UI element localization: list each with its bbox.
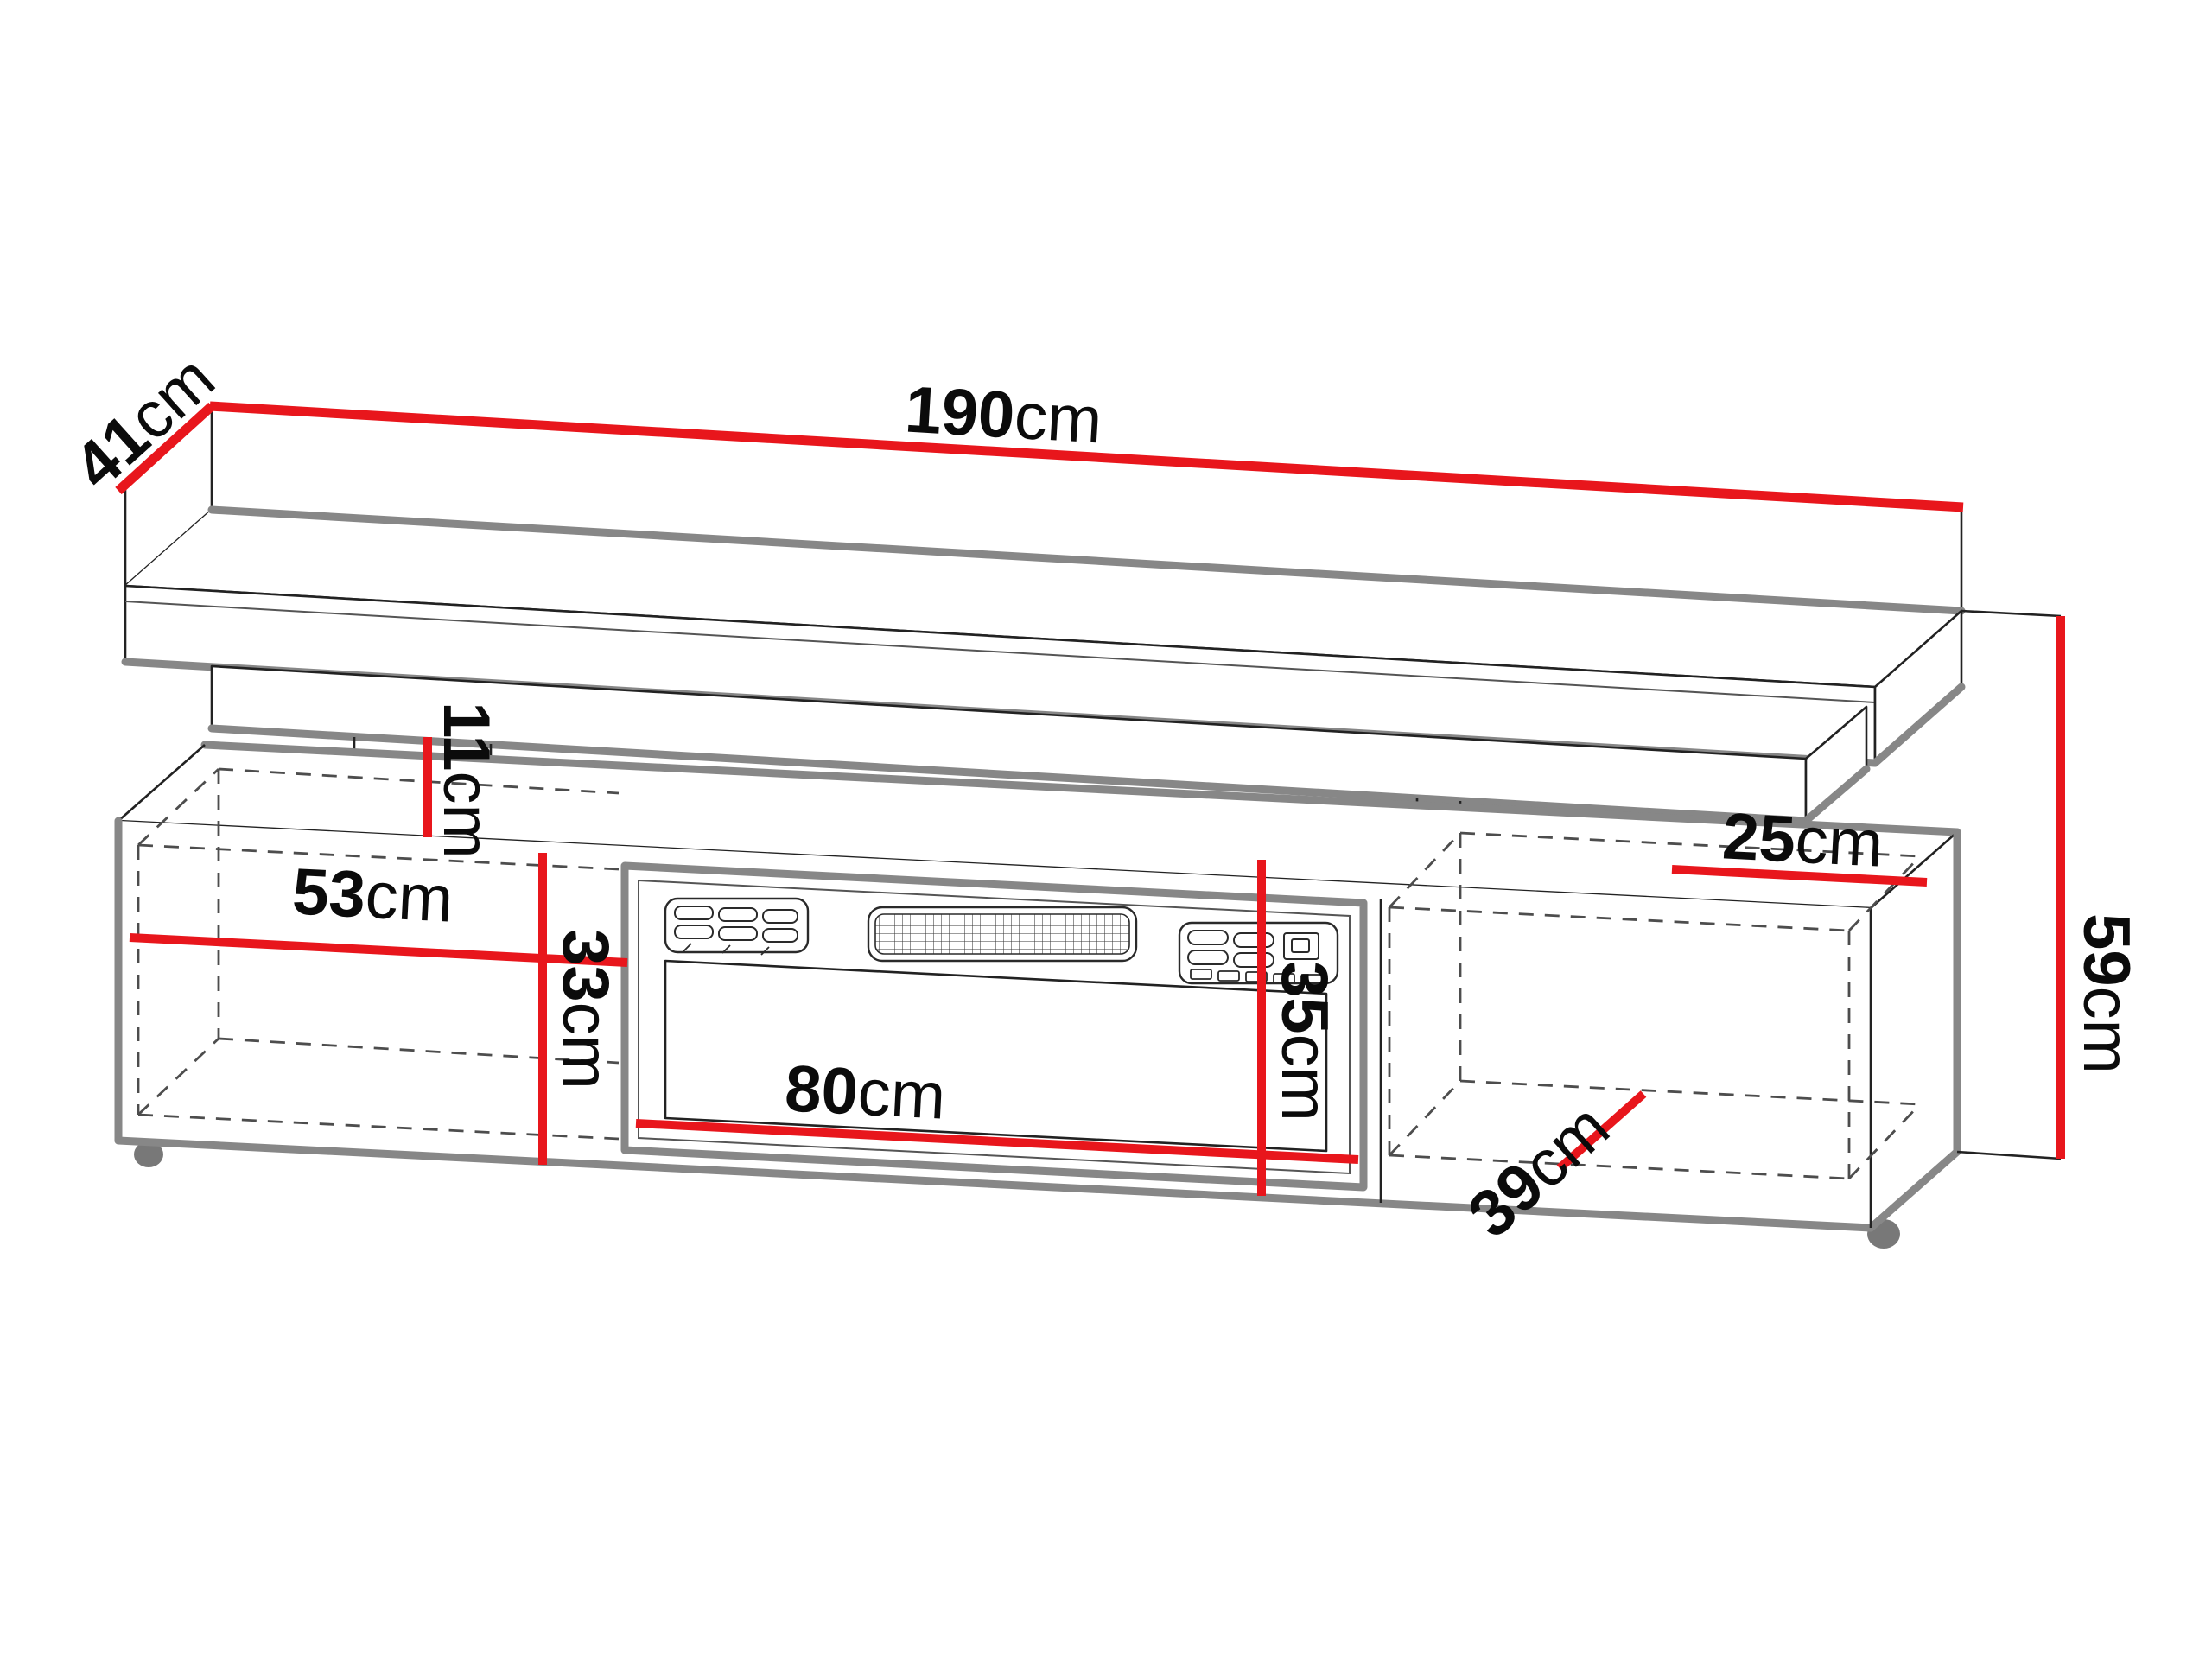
fireplace-mesh-vent <box>868 907 1136 961</box>
dimension-label-total-width: 190cm <box>903 373 1104 458</box>
dimension-label-left-width: 53cm <box>290 855 454 936</box>
dimension-label-right-top-depth: 25cm <box>1720 799 1885 880</box>
dimension-label-fireplace-height: 35cm <box>1268 961 1341 1122</box>
fireplace-left-vent <box>665 899 808 955</box>
dimension-label-left-height: 33cm <box>549 929 622 1090</box>
dimension-label-fireplace-width: 80cm <box>783 1052 947 1133</box>
furniture-dimension-diagram: 190cm 41cm 59cm 11cm 53cm 33cm 80cm 35cm… <box>0 0 2212 1659</box>
dimension-label-gap: 11cm <box>429 702 503 859</box>
dimension-label-total-height: 59cm <box>2069 913 2143 1074</box>
